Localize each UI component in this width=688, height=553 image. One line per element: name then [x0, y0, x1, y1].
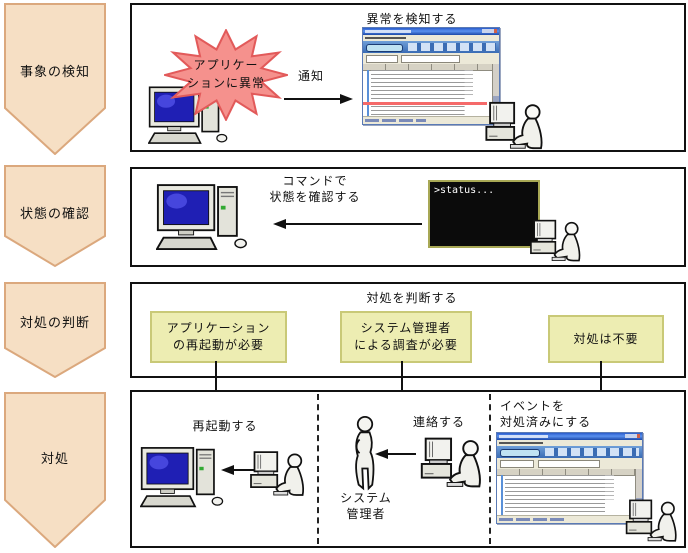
detect-console-title: 異常を検知する	[357, 11, 467, 27]
contact-action-arrow	[374, 448, 416, 460]
section-divider	[317, 394, 319, 544]
option-restart-needed: アプリケーション の再起動が必要	[150, 311, 287, 363]
console-event-list	[497, 475, 636, 516]
detect-panel: アプリケー ションに異常 通知 異常を検知する	[130, 3, 686, 152]
operator-at-computer-icon	[518, 219, 596, 263]
stage-detect-label: 事象の検知	[4, 61, 106, 80]
restart-label: 再起動する	[160, 418, 290, 434]
option-text: の再起動が必要	[173, 337, 264, 354]
stage-act-label: 対処	[4, 448, 106, 467]
option-text: 対処は不要	[573, 331, 638, 348]
stage-check-label: 状態の確認	[4, 203, 106, 222]
console-titlebar	[497, 433, 642, 440]
option-text: システム管理者	[361, 320, 452, 337]
check-panel: コマンドで 状態を確認する >status...	[130, 167, 686, 267]
act-panel: 再起動する システム 管理者 連絡する	[130, 390, 686, 548]
check-label-line2: 状態を確認する	[255, 189, 375, 205]
option-text: による調査が必要	[354, 337, 458, 354]
stage-chevron-shape	[4, 392, 106, 548]
operator-at-computer-icon	[414, 436, 492, 490]
admin-label-line2: 管理者	[328, 506, 404, 522]
judge-title: 対処を判断する	[322, 290, 502, 306]
operator-at-computer-icon	[620, 498, 686, 544]
resolve-label-line1: イベントを	[500, 398, 640, 414]
contact-label: 連絡する	[404, 414, 474, 430]
console-toolbar	[363, 41, 499, 53]
alert-event-row	[363, 102, 487, 105]
stage-judge: 対処の判断	[4, 282, 106, 378]
admin-label-line1: システム	[328, 490, 404, 506]
console-titlebar	[363, 28, 499, 35]
resolve-label-line2: 対処済みにする	[500, 414, 640, 430]
operator-at-computer-icon	[244, 450, 314, 498]
option-text: アプリケーション	[167, 320, 271, 337]
stage-judge-label: 対処の判断	[4, 312, 106, 331]
stage-act: 対処	[4, 392, 106, 548]
option-investigation-needed: システム管理者 による調査が必要	[340, 311, 472, 363]
check-label-line1: コマンドで	[255, 173, 375, 189]
stage-check: 状態の確認	[4, 165, 106, 268]
check-arrow	[272, 218, 422, 230]
operator-at-computer-icon	[477, 101, 555, 151]
console-toolbar	[497, 446, 642, 458]
stage-detect: 事象の検知	[4, 3, 106, 155]
desktop-computer-icon	[140, 446, 226, 510]
notify-label: 通知	[281, 68, 341, 84]
error-starburst-text-line1: アプリケー	[164, 57, 288, 73]
desktop-computer-icon	[156, 183, 250, 253]
console-event-list	[363, 70, 493, 117]
error-starburst-text-line2: ションに異常	[164, 75, 288, 91]
terminal-text: >status...	[434, 185, 494, 196]
notify-arrow	[284, 93, 354, 105]
option-no-action: 対処は不要	[548, 315, 664, 363]
